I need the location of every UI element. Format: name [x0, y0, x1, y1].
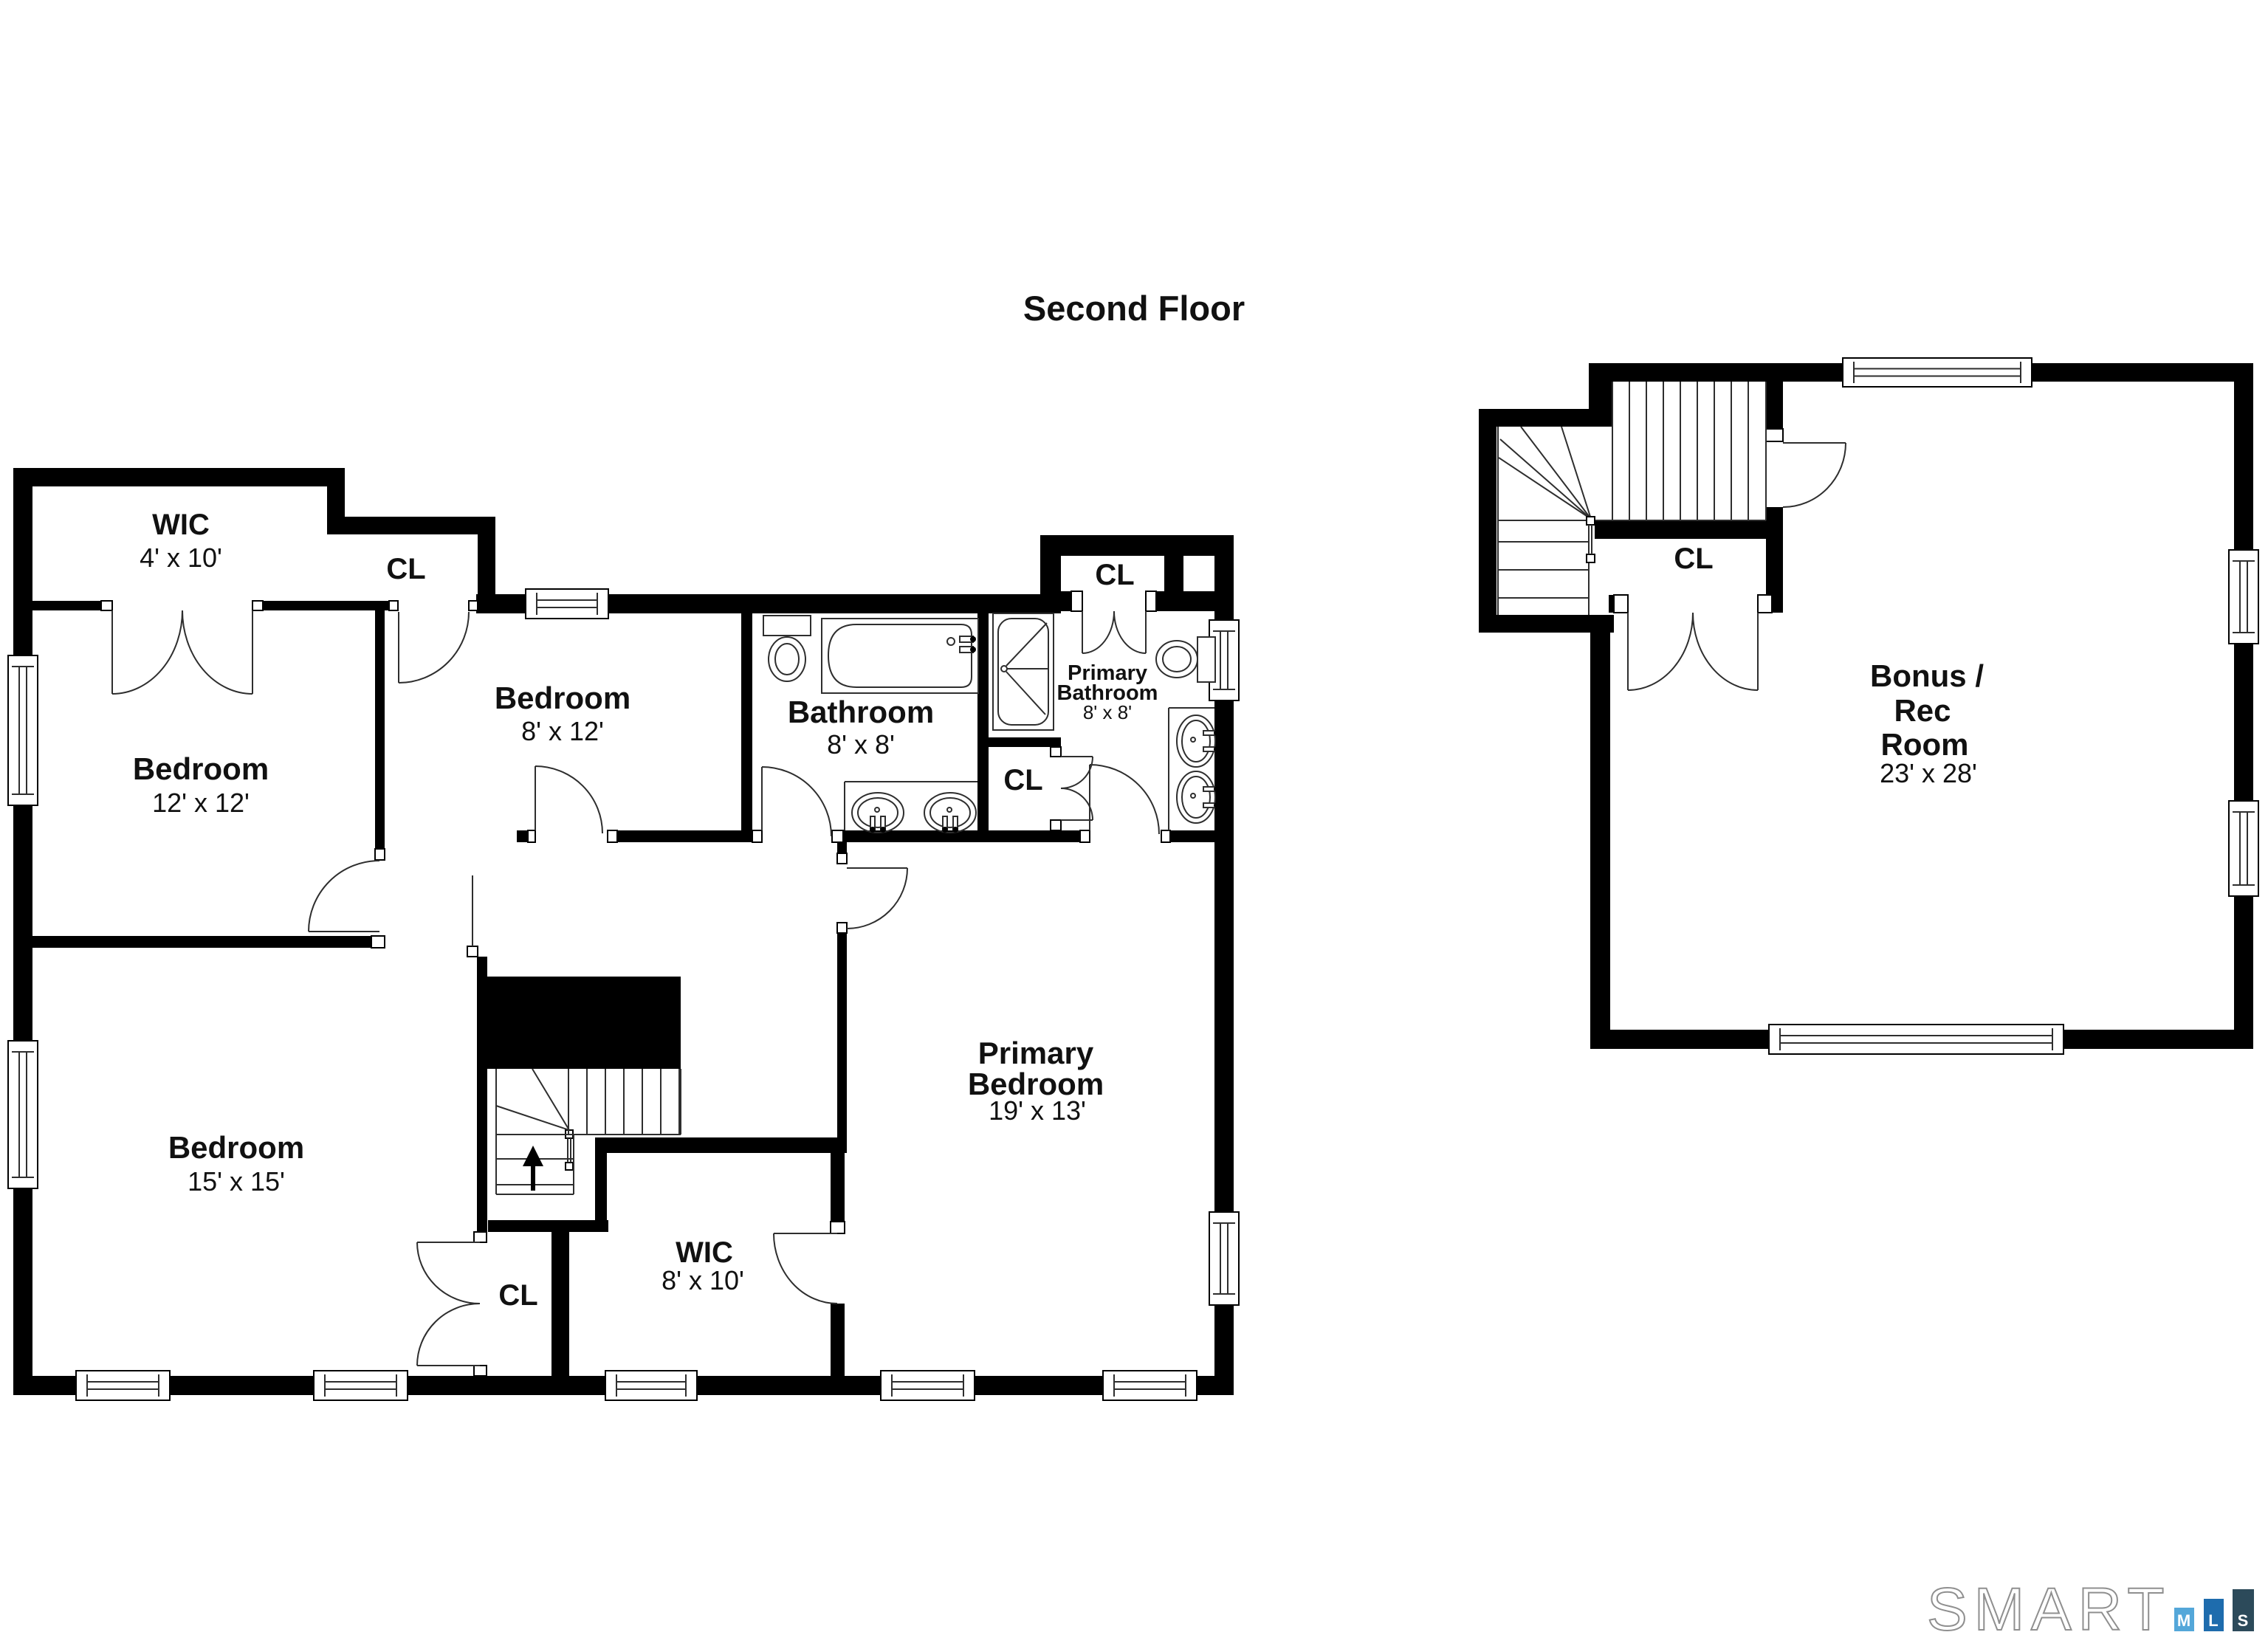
svg-text:Bedroom: Bedroom: [495, 681, 630, 715]
svg-text:Bonus /: Bonus /: [1870, 658, 1984, 693]
svg-text:8' x 8': 8' x 8': [1083, 701, 1132, 723]
svg-text:SMART: SMART: [1927, 1576, 2171, 1643]
svg-text:8' x 8': 8' x 8': [827, 729, 895, 760]
svg-text:L: L: [2208, 1611, 2218, 1630]
svg-text:S: S: [2238, 1611, 2249, 1630]
svg-text:4' x 10': 4' x 10': [140, 543, 222, 573]
svg-text:Primary: Primary: [978, 1036, 1094, 1070]
svg-text:Bedroom: Bedroom: [133, 751, 269, 786]
svg-text:Room: Room: [1881, 727, 1969, 762]
svg-text:WIC: WIC: [676, 1236, 733, 1269]
svg-text:M: M: [2177, 1611, 2190, 1630]
svg-text:CL: CL: [386, 553, 425, 585]
svg-text:CL: CL: [1095, 559, 1134, 591]
svg-text:8' x 10': 8' x 10': [661, 1265, 744, 1295]
svg-text:19' x 13': 19' x 13': [989, 1095, 1086, 1126]
svg-text:CL: CL: [1003, 764, 1042, 796]
svg-text:CL: CL: [1674, 543, 1713, 575]
svg-text:Bathroom: Bathroom: [788, 695, 934, 729]
svg-text:Bedroom: Bedroom: [168, 1130, 304, 1165]
svg-text:Rec: Rec: [1894, 693, 1951, 728]
svg-text:15' x 15': 15' x 15': [188, 1166, 285, 1197]
svg-text:8' x 12': 8' x 12': [521, 716, 604, 746]
svg-text:WIC: WIC: [152, 509, 210, 541]
svg-text:23' x 28': 23' x 28': [1880, 758, 1977, 788]
svg-text:Second Floor: Second Floor: [1023, 289, 1245, 328]
svg-text:12' x 12': 12' x 12': [152, 788, 250, 818]
svg-text:CL: CL: [498, 1279, 537, 1312]
